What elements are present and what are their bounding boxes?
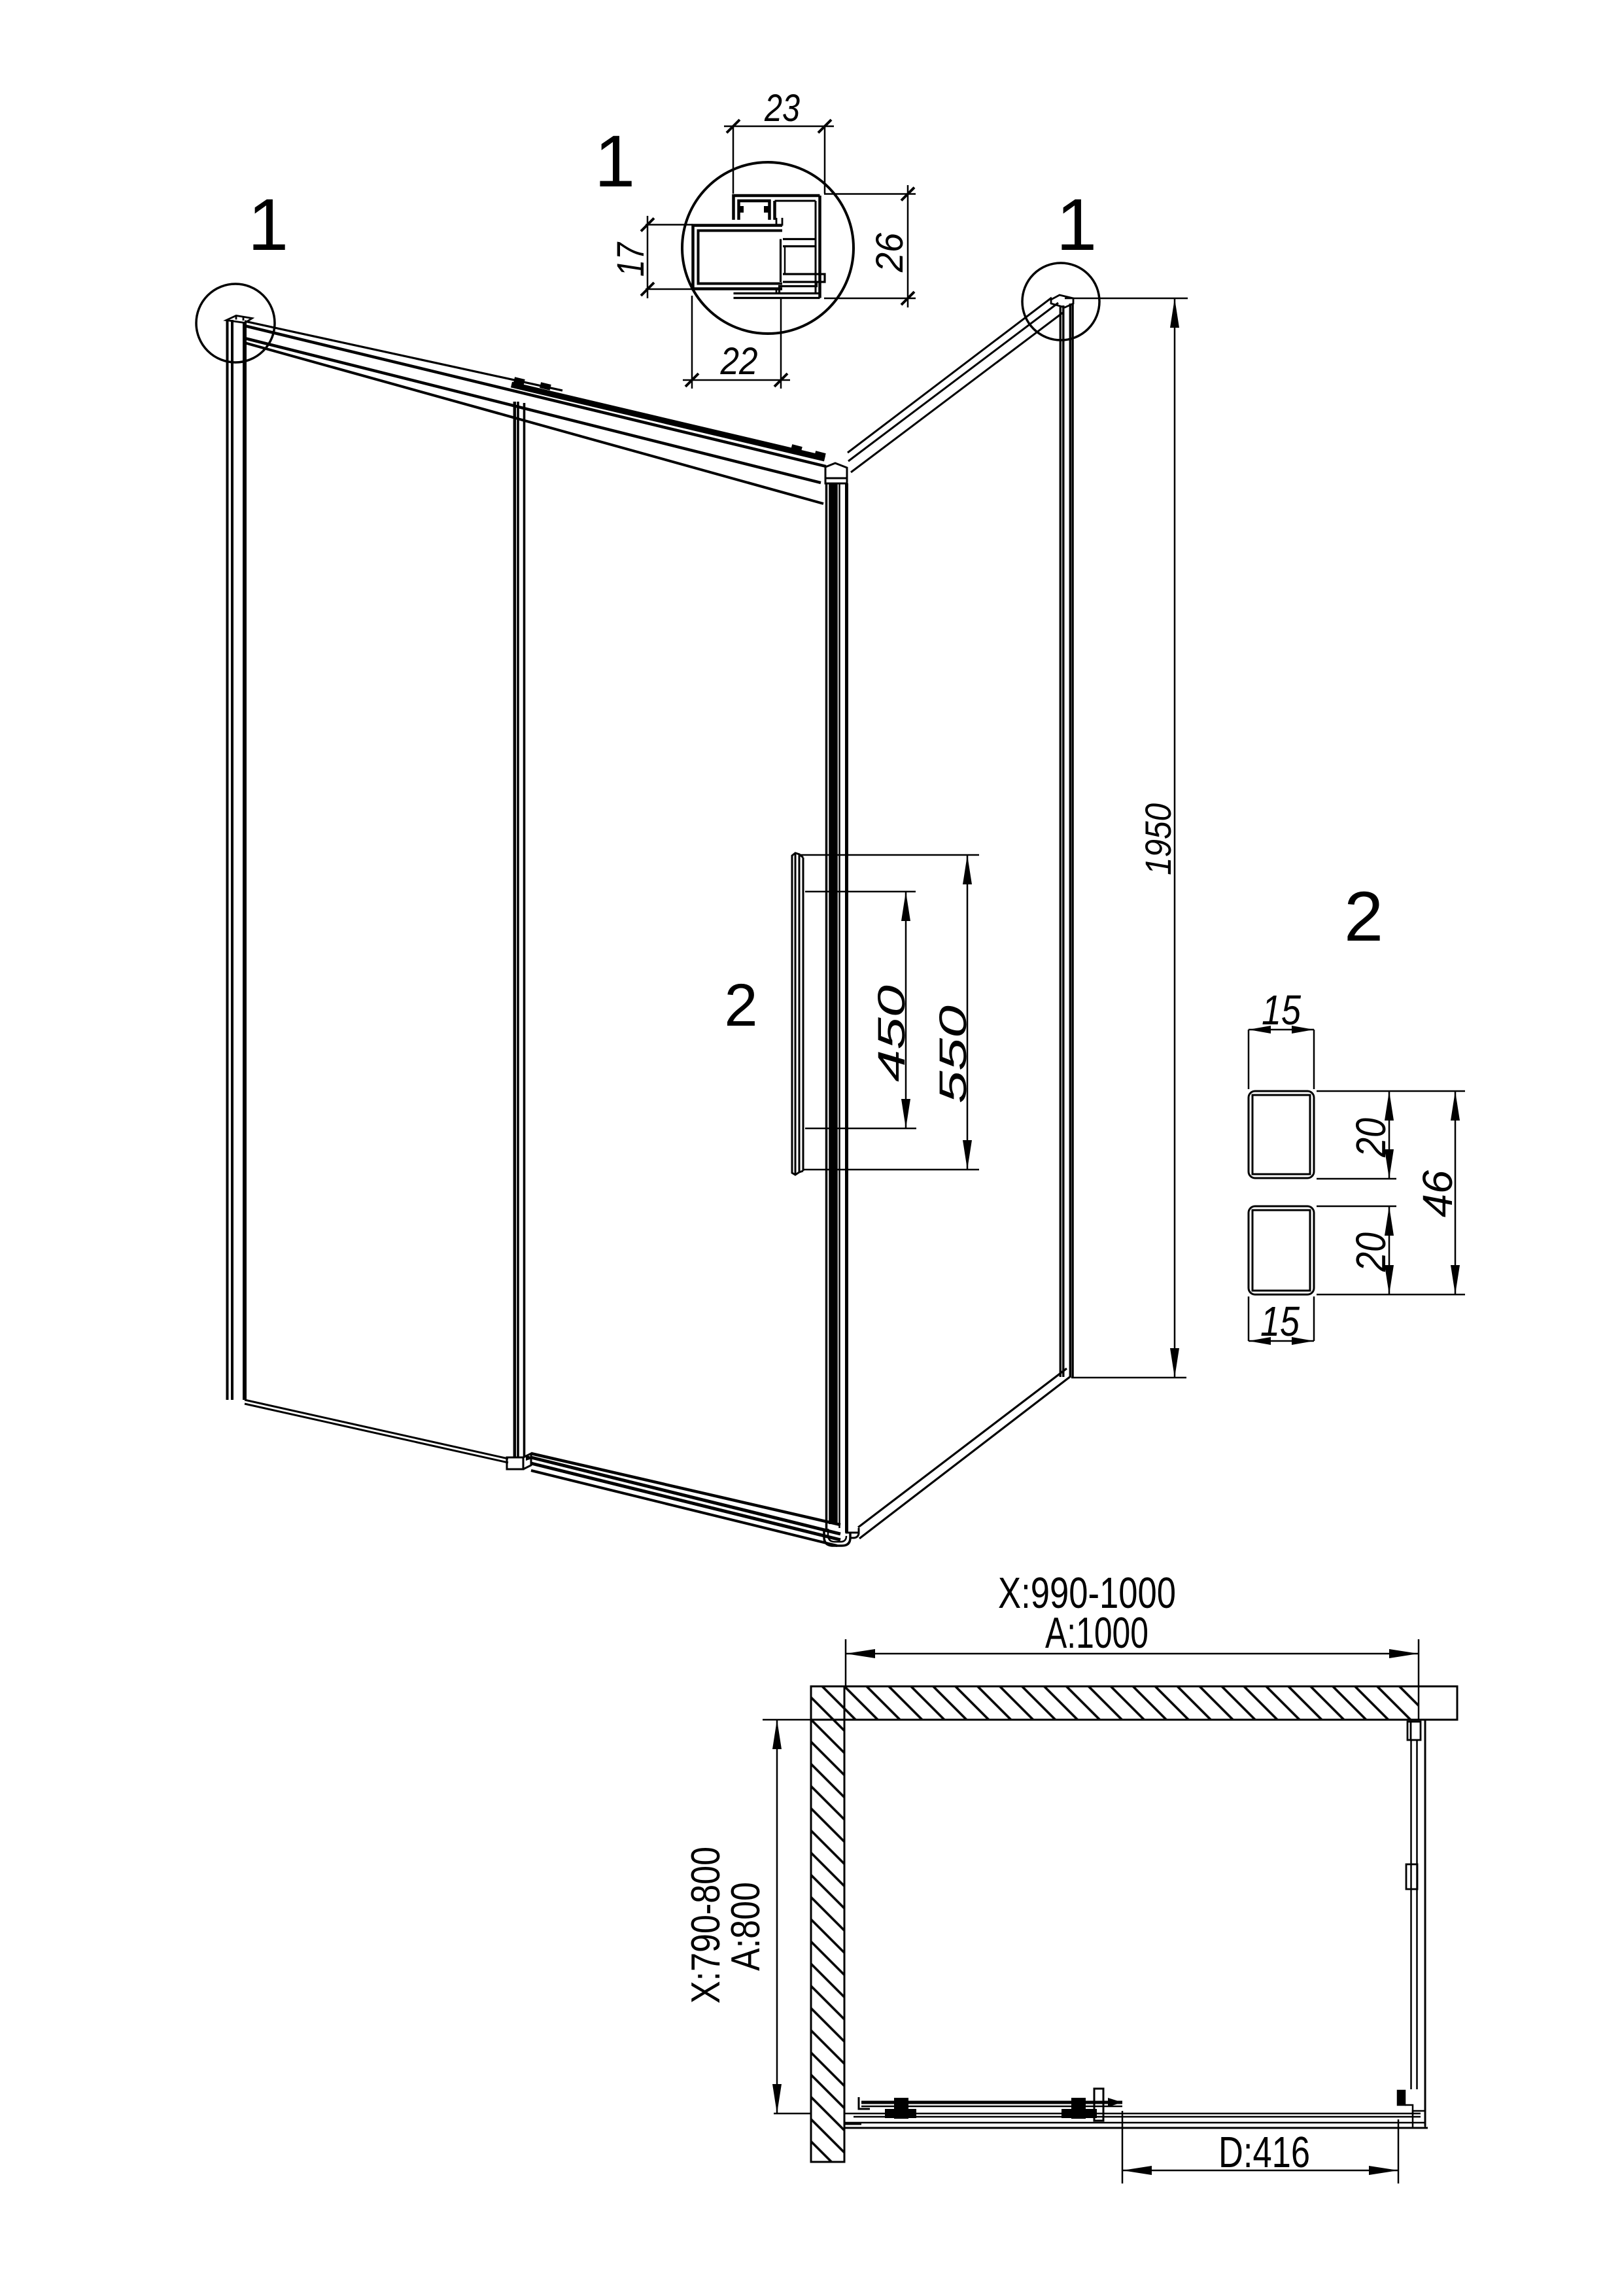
svg-text:20: 20 [1347, 1118, 1394, 1158]
svg-text:D:416: D:416 [1218, 2128, 1310, 2177]
svg-text:2: 2 [724, 972, 757, 1039]
svg-text:550: 550 [932, 1005, 975, 1104]
svg-text:1: 1 [1056, 184, 1097, 266]
svg-text:20: 20 [1347, 1232, 1394, 1272]
svg-text:1: 1 [595, 120, 635, 202]
svg-text:2: 2 [1344, 877, 1383, 956]
svg-text:23: 23 [764, 87, 800, 130]
svg-text:17: 17 [610, 241, 652, 277]
svg-text:15: 15 [1262, 986, 1301, 1034]
svg-text:450: 450 [871, 985, 913, 1082]
svg-text:15: 15 [1260, 1298, 1300, 1345]
svg-text:22: 22 [720, 340, 758, 383]
svg-text:A:1000: A:1000 [1045, 1609, 1148, 1658]
svg-text:26: 26 [869, 232, 911, 273]
svg-text:46: 46 [1414, 1170, 1461, 1217]
svg-text:X:790-800: X:790-800 [683, 1847, 729, 2004]
svg-text:1: 1 [248, 184, 288, 266]
svg-text:A:800: A:800 [723, 1882, 768, 1971]
svg-text:1950: 1950 [1137, 803, 1179, 875]
